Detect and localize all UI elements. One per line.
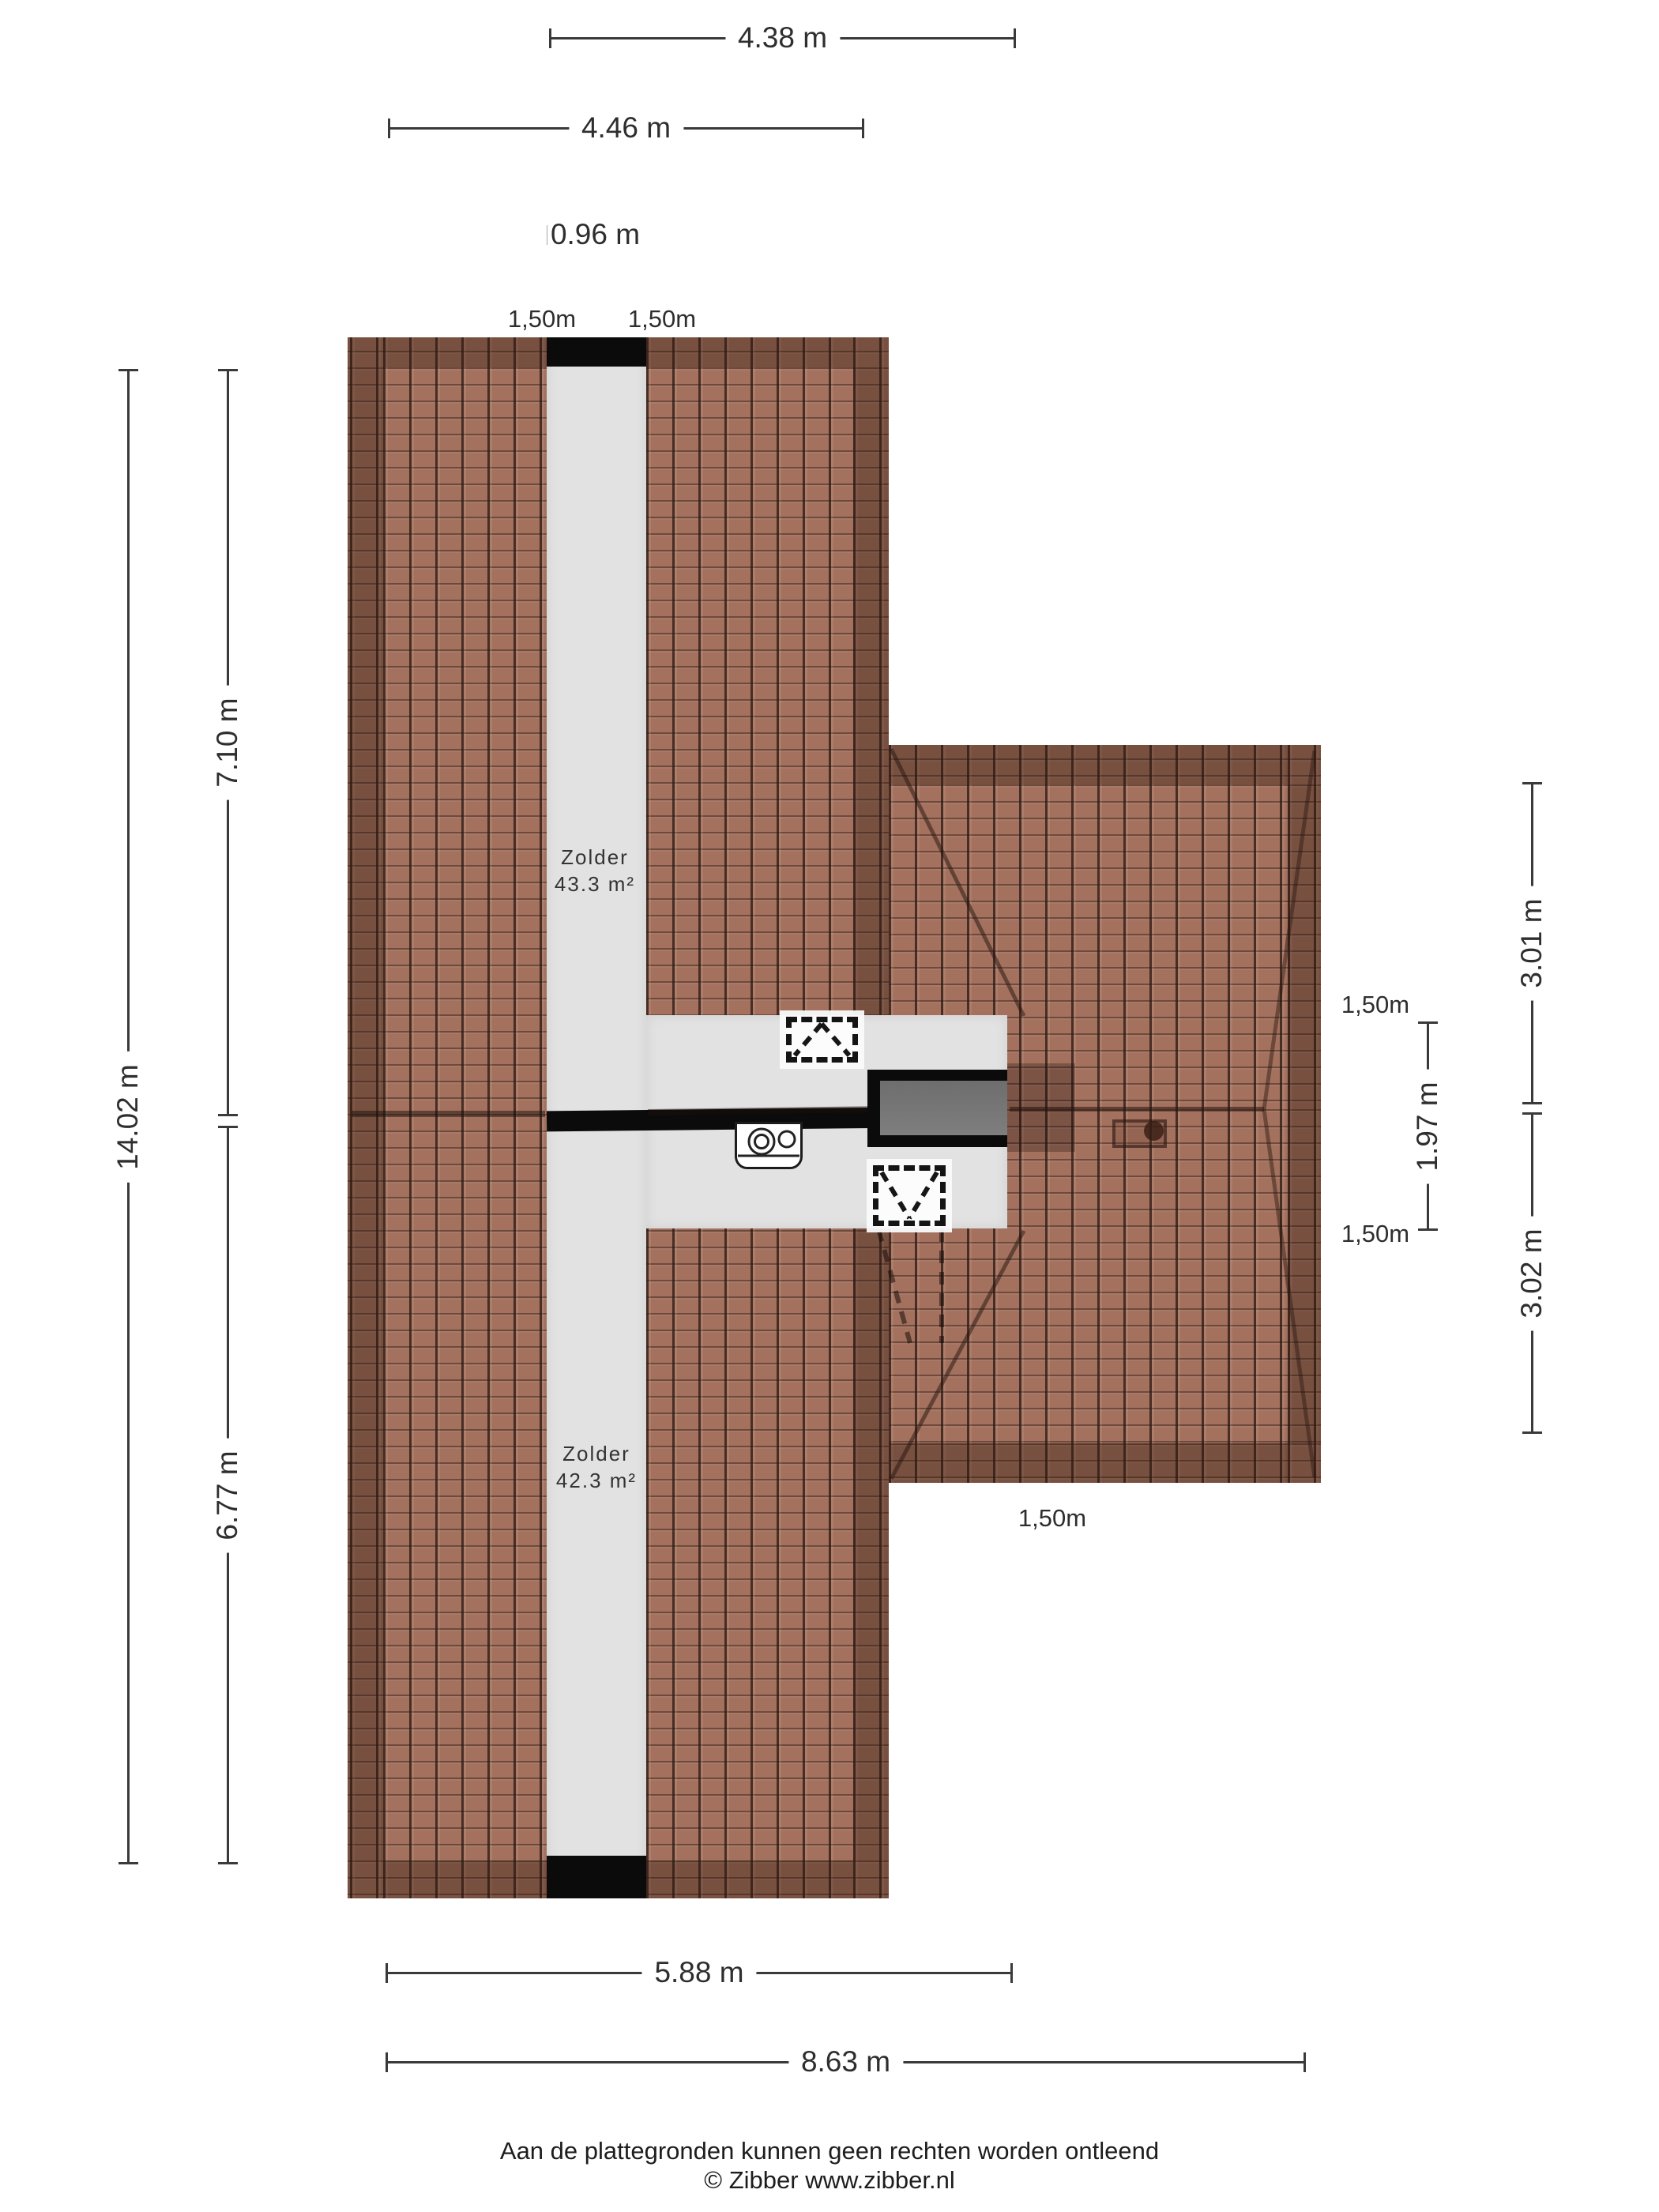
dormer-shadow xyxy=(1007,1063,1075,1152)
gable-wall-bottom xyxy=(547,1856,646,1898)
room-label-zolder-upper: Zolder 43.3 m² xyxy=(555,844,635,897)
dimension-label: 5.88 m xyxy=(641,1956,756,1989)
room-label-zolder-lower: Zolder 42.3 m² xyxy=(556,1440,637,1494)
dimension-label: 3.01 m xyxy=(1514,886,1550,1000)
dimension-label: 1.97 m xyxy=(1409,1069,1446,1183)
roof-left-west-slope xyxy=(348,337,547,1898)
dimension-label: 14.02 m xyxy=(110,1051,146,1183)
stairwell-opening xyxy=(880,1081,1007,1135)
dimension-label: 4.38 m xyxy=(725,21,840,55)
dimension-label: 3.02 m xyxy=(1514,1216,1550,1330)
divider-wall xyxy=(547,1108,873,1131)
gable-wall-top xyxy=(547,337,646,367)
room-name: Zolder xyxy=(555,844,635,871)
dimension-label: 7.10 m xyxy=(209,685,246,799)
dimension-label: 4.46 m xyxy=(569,111,683,145)
skylight-icon xyxy=(786,1017,858,1063)
room-area: 43.3 m² xyxy=(555,871,635,897)
headroom-label-bottom: 1,50m xyxy=(1018,1504,1086,1533)
chimney-icon xyxy=(1112,1119,1167,1148)
headroom-label-top-left: 1,50m xyxy=(508,305,576,333)
dimension-label: 6.77 m xyxy=(209,1438,246,1552)
stairwell xyxy=(867,1070,1007,1147)
dimension-label: 8.63 m xyxy=(788,2045,903,2078)
headroom-label-top-right: 1,50m xyxy=(628,305,696,333)
boiler-icon xyxy=(735,1122,803,1169)
headroom-label-right-lower: 1,50m xyxy=(1341,1220,1409,1248)
chimney-vent-icon xyxy=(1144,1121,1164,1141)
floorplan-canvas: Zolder 43.3 m² Zolder 42.3 m² 4.38 m 4.4… xyxy=(0,0,1659,2212)
dimension-label: 0.96 m xyxy=(547,218,644,251)
room-name: Zolder xyxy=(556,1440,637,1467)
footer-disclaimer: Aan de plattegronden kunnen geen rechten… xyxy=(500,2137,1159,2165)
headroom-label-right-upper: 1,50m xyxy=(1341,991,1409,1019)
footer-copyright: © Zibber www.zibber.nl xyxy=(704,2166,954,2195)
skylight-icon xyxy=(873,1165,946,1226)
room-area: 42.3 m² xyxy=(556,1467,637,1494)
